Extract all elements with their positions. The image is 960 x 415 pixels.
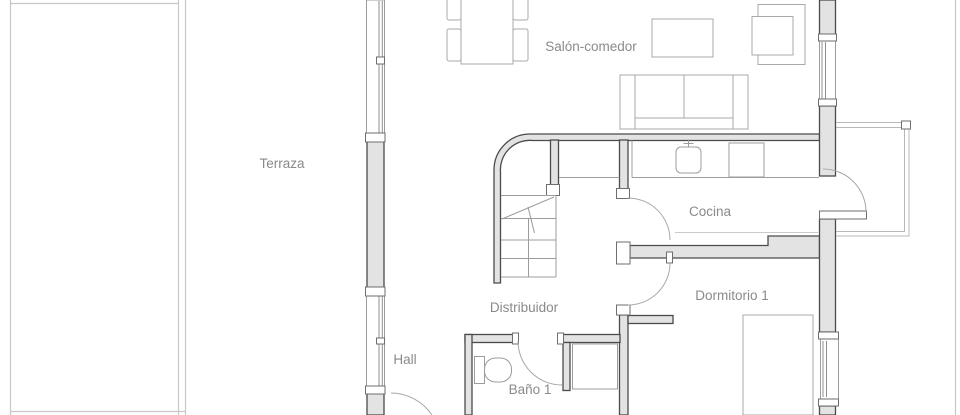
door-jamb (617, 242, 631, 264)
window-jamb (366, 133, 386, 142)
room-label-cocina: Cocina (689, 204, 732, 219)
sofa (620, 75, 748, 129)
toilet-tank (475, 357, 485, 384)
coffee-table (652, 19, 713, 57)
door-leaf-balcony (820, 211, 867, 219)
window-jamb (819, 99, 837, 106)
right-wall-bottom (820, 406, 836, 415)
kitchen-salon-wall-with-curved-stair-wall (494, 134, 820, 283)
balcony-post (902, 121, 911, 129)
door-jamb (617, 305, 631, 315)
window-jamb (819, 399, 839, 406)
room-label-bano-1: Baño 1 (509, 382, 552, 397)
cooktop (729, 143, 764, 177)
staircase (501, 196, 556, 278)
dining-table (461, 0, 513, 64)
toilet-bowl (485, 358, 512, 382)
armchair (752, 5, 805, 65)
furniture (447, 0, 813, 415)
dining-chair (513, 29, 528, 61)
right-wall-top (820, 0, 836, 35)
door-leaf-dormitorio (667, 252, 673, 263)
window-jamb (366, 386, 386, 394)
left-wall-bottom (367, 393, 384, 415)
shower-west-wall (563, 343, 570, 391)
door-swing-bano (518, 341, 562, 385)
bed (743, 315, 813, 415)
kitchen-sink (676, 147, 701, 173)
room-label-dormitorio-1: Dormitorio 1 (695, 288, 769, 303)
door-jamb (547, 185, 560, 196)
bath-north-wall-right (560, 335, 620, 343)
dormitorio-west-wall (620, 315, 629, 415)
room-label-salon-comedor: Salón-comedor (545, 39, 637, 54)
dining-chair (447, 29, 461, 61)
window-jamb (366, 287, 386, 296)
window-jamb (819, 34, 837, 41)
room-label-terraza: Terraza (259, 156, 305, 171)
door-swing-hall-entrance (391, 393, 432, 415)
dining-chair (513, 0, 528, 20)
window-jamb (819, 332, 839, 339)
door-swing-cocina (628, 198, 670, 240)
window-mullion (377, 338, 385, 344)
door-swing-dormitorio (628, 263, 670, 305)
room-label-distribuidor: Distribuidor (490, 300, 559, 315)
room-label-hall: Hall (393, 352, 416, 367)
closet-top-wall (628, 316, 673, 324)
shower (573, 344, 618, 389)
door-jamb (558, 333, 564, 344)
floor-plan-page: Terraza Salón-comedor Cocina Distribuido… (0, 0, 960, 415)
left-wall-mid (367, 141, 384, 288)
dormitorio-north-wall (630, 236, 820, 258)
floor-plan-canvas: Terraza Salón-comedor Cocina Distribuido… (0, 0, 960, 415)
dining-chair (447, 0, 461, 20)
window-mullion (377, 57, 385, 64)
right-wall-upper-mid (820, 106, 836, 176)
door-jamb (617, 189, 630, 199)
kitchen-stub-wall-left (551, 140, 559, 185)
right-wall-lower-mid (820, 219, 836, 332)
bath-west-wall (465, 335, 472, 415)
kitchen-stub-wall-right (620, 140, 629, 189)
